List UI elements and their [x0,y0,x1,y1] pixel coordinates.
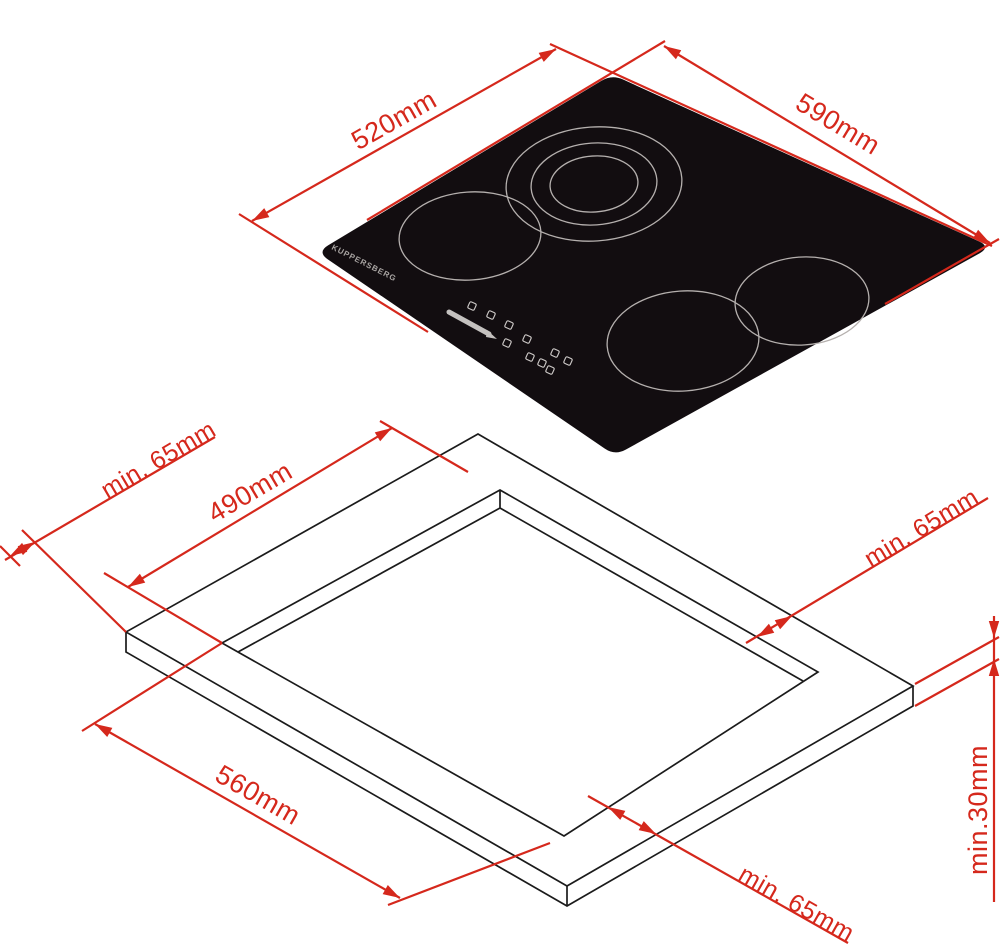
clearance-label-right: min. 65mm [859,483,983,573]
arrowhead [661,42,681,60]
extension-lines [0,530,126,632]
dimension-label-cutout-depth: 560mm [210,759,305,831]
dimension-label-cutout-width: 490mm [203,456,298,529]
clearance-dimension-right: min. 65mm [746,483,988,643]
extension-lines [82,643,550,905]
extension-lines [915,637,999,706]
thickness-dimension: min.30mm [915,616,999,902]
installation-diagram-stage: KUPPERSBERG 520mm 590mm 490mm 560mm [0,0,1000,945]
arrowhead [989,659,999,676]
arrowhead [125,574,145,592]
thickness-label: min.30mm [963,745,993,875]
arrowhead [605,802,625,819]
arrowhead [775,612,795,630]
clearance-label-rear-left: min. 65mm [96,415,221,504]
dimension-label-depth: 590mm [791,87,886,160]
hob-installation-diagram: KUPPERSBERG 520mm 590mm 490mm 560mm [0,0,1000,945]
arrowhead [754,624,774,642]
dimension-line [95,724,400,898]
dimension-label-width: 520mm [346,84,441,156]
clearance-label-front: min. 65mm [734,860,859,945]
cutout-opening [222,490,818,836]
cutout-dimension-560: 560mm [82,643,550,905]
cutout-inner-wall [238,490,803,681]
arrowhead [375,424,395,442]
clearance-dimension-rear-left: min. 65mm [0,415,221,632]
arrowhead [639,821,659,838]
arrowhead [989,621,999,638]
